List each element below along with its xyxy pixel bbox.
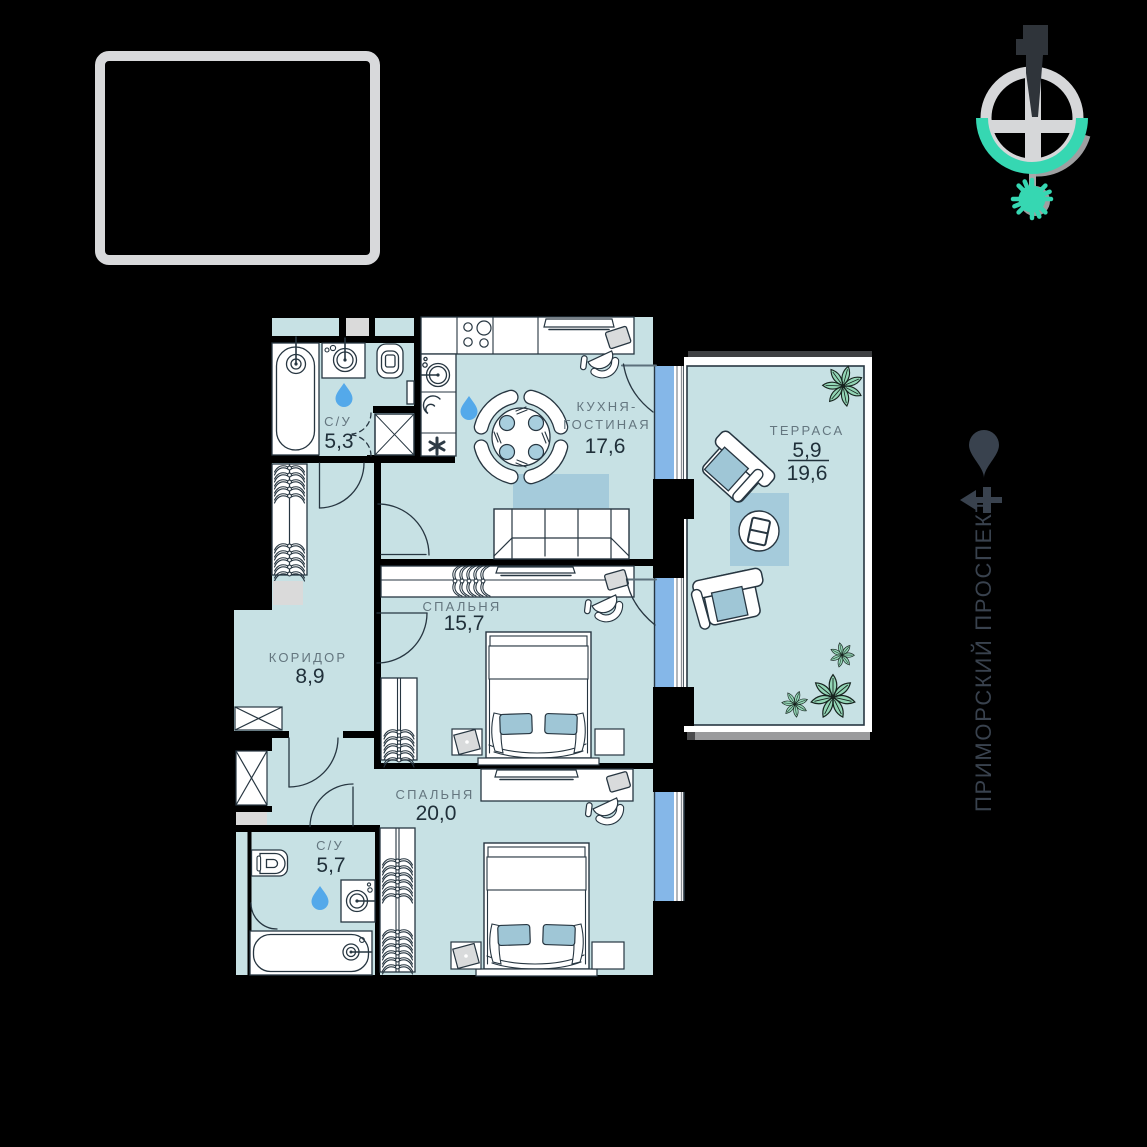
svg-text:5,9: 5,9 <box>792 439 821 462</box>
svg-text:С/У: С/У <box>316 838 344 853</box>
svg-text:КОРИДОР: КОРИДОР <box>269 650 348 665</box>
svg-text:КУХНЯ-: КУХНЯ- <box>577 399 638 414</box>
svg-text:8,9: 8,9 <box>295 665 324 688</box>
svg-text:ПРИМОРСКИЙ ПРОСПЕКТ: ПРИМОРСКИЙ ПРОСПЕКТ <box>971 497 996 812</box>
svg-text:ГОСТИНАЯ: ГОСТИНАЯ <box>563 417 651 432</box>
svg-text:СПАЛЬНЯ: СПАЛЬНЯ <box>396 787 475 802</box>
svg-text:17,6: 17,6 <box>585 435 626 458</box>
svg-text:С/У: С/У <box>324 414 352 429</box>
svg-text:20,0: 20,0 <box>416 802 457 825</box>
svg-text:5,3: 5,3 <box>324 430 353 453</box>
svg-text:5,7: 5,7 <box>316 854 345 877</box>
svg-text:ТЕРРАСА: ТЕРРАСА <box>770 423 845 438</box>
svg-text:15,7: 15,7 <box>444 612 485 635</box>
svg-text:19,6: 19,6 <box>787 462 828 485</box>
